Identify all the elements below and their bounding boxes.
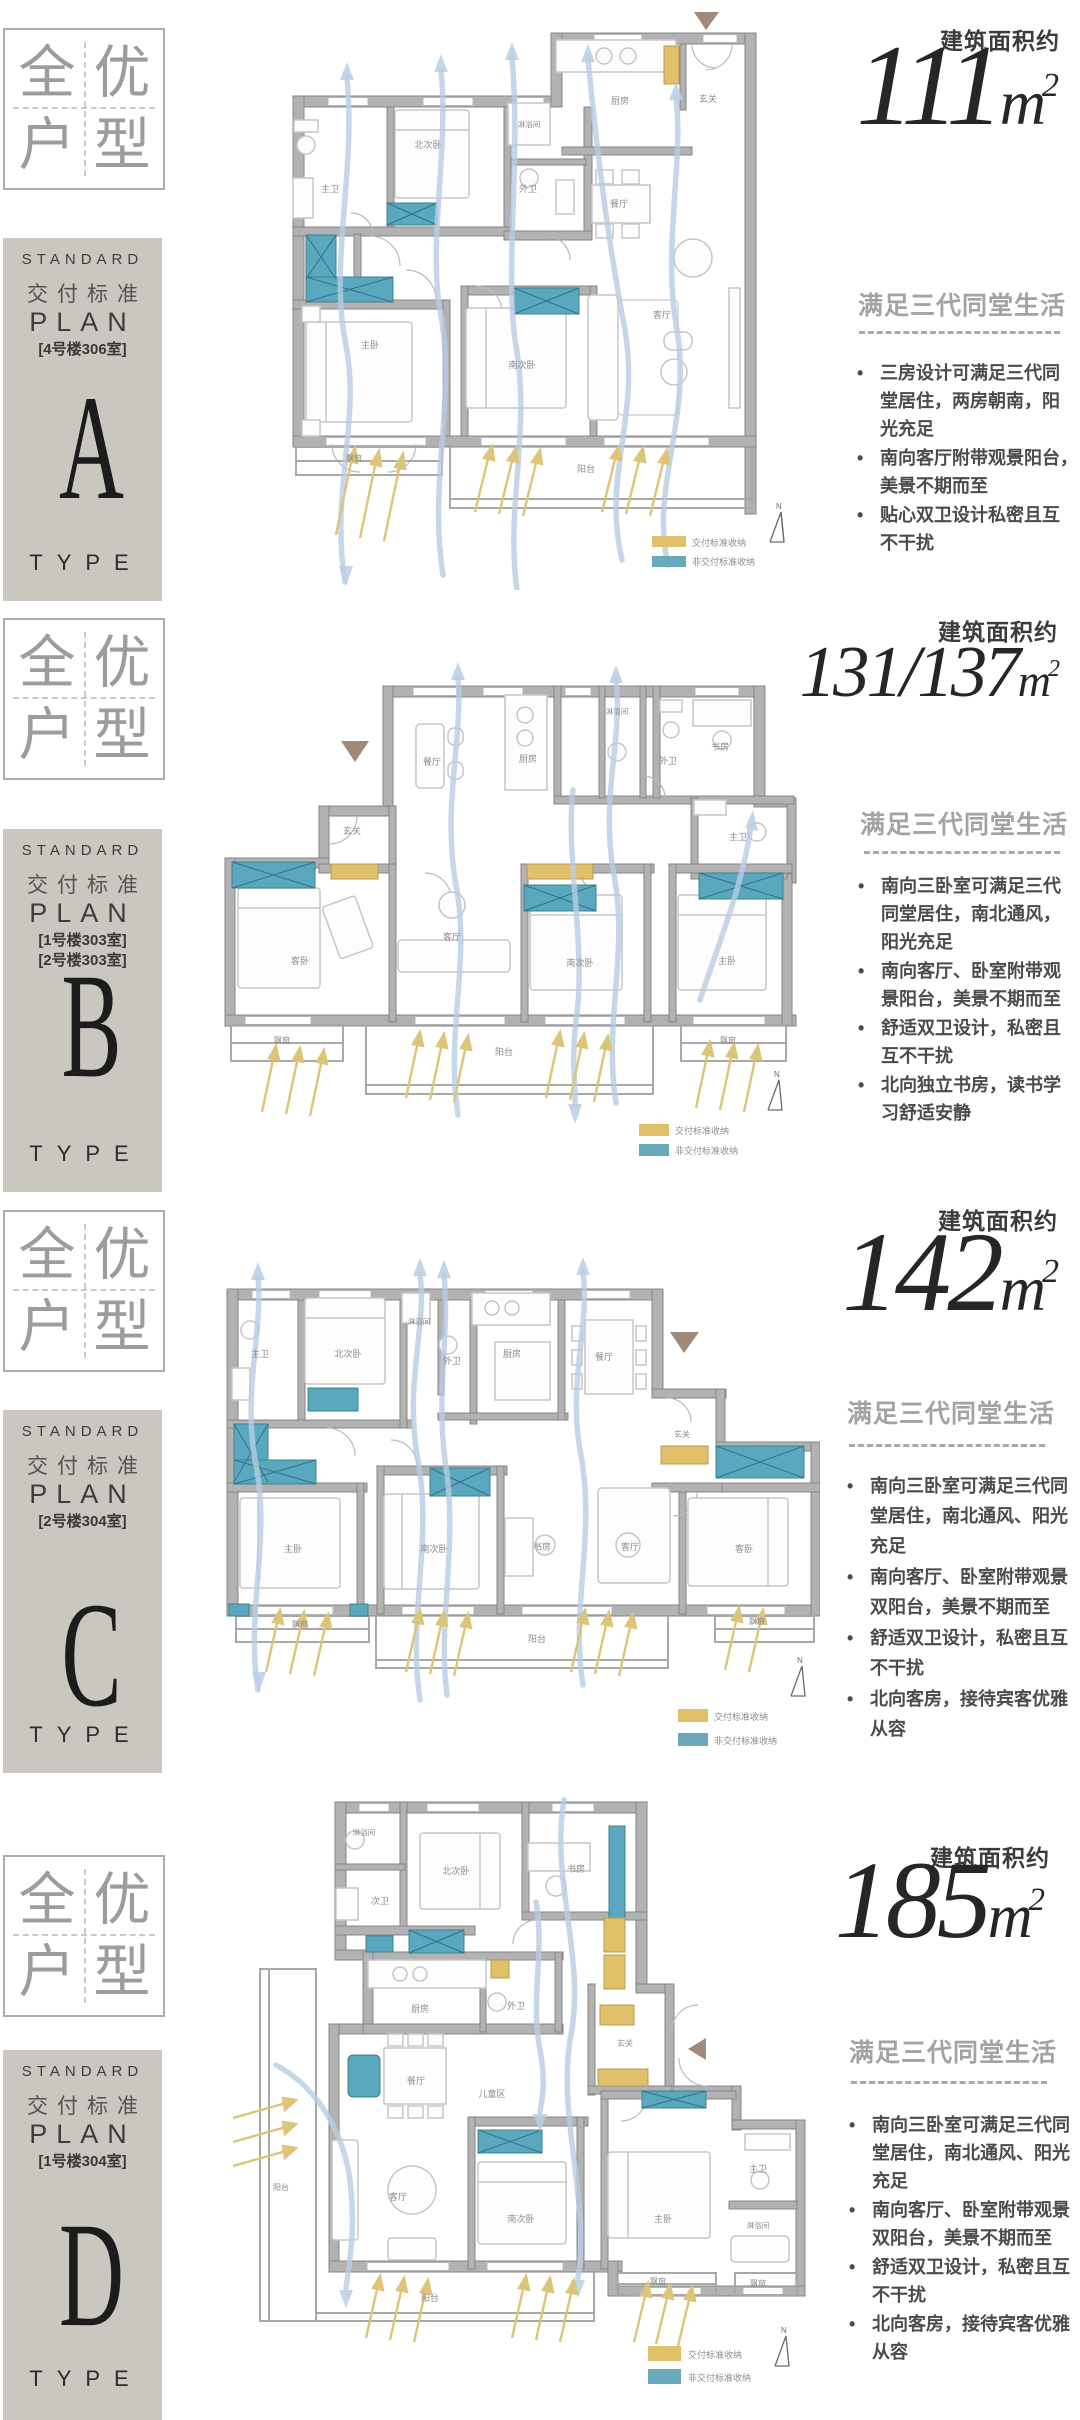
svg-text:厨房: 厨房 <box>519 753 537 764</box>
svg-text:主卫: 主卫 <box>749 2163 767 2174</box>
svg-text:客卧: 客卧 <box>291 955 309 966</box>
svg-text:南次卧: 南次卧 <box>420 1543 447 1554</box>
svg-text:主卧: 主卧 <box>284 1543 302 1554</box>
svg-text:阳台: 阳台 <box>421 2292 439 2303</box>
svg-text:玄关: 玄关 <box>699 93 717 104</box>
svg-text:北次卧: 北次卧 <box>414 139 441 150</box>
svg-text:北次卧: 北次卧 <box>442 1865 469 1876</box>
svg-text:玄关: 玄关 <box>617 2038 633 2048</box>
svg-text:阳台: 阳台 <box>495 1046 513 1057</box>
svg-text:餐厅: 餐厅 <box>407 2075 425 2086</box>
svg-text:阳台: 阳台 <box>528 1633 546 1644</box>
svg-text:交付标准收纳: 交付标准收纳 <box>692 537 746 548</box>
svg-text:玄关: 玄关 <box>343 825 361 836</box>
svg-text:南次卧: 南次卧 <box>507 2213 534 2224</box>
svg-text:书房: 书房 <box>533 1541 551 1552</box>
svg-text:外卫: 外卫 <box>507 2000 525 2011</box>
svg-text:主卧: 主卧 <box>361 339 379 350</box>
svg-text:淋浴间: 淋浴间 <box>606 706 629 716</box>
svg-text:飘窗: 飘窗 <box>720 1035 736 1045</box>
svg-text:飘窗: 飘窗 <box>650 2276 666 2286</box>
svg-text:北次卧: 北次卧 <box>334 1348 361 1359</box>
svg-text:客厅: 客厅 <box>621 1541 639 1552</box>
svg-text:书房: 书房 <box>711 741 729 752</box>
svg-text:交付标准收纳: 交付标准收纳 <box>714 1711 768 1722</box>
svg-text:客厅: 客厅 <box>443 931 461 942</box>
svg-text:淋浴间: 淋浴间 <box>518 119 541 129</box>
svg-text:N: N <box>776 502 782 511</box>
svg-text:阳台: 阳台 <box>577 463 595 474</box>
svg-text:外卫: 外卫 <box>659 755 677 766</box>
svg-text:次卫: 次卫 <box>371 1895 389 1906</box>
svg-text:阳台: 阳台 <box>273 2182 289 2192</box>
svg-text:儿童区: 儿童区 <box>478 2088 505 2099</box>
svg-text:主卧: 主卧 <box>718 955 736 966</box>
svg-text:飘窗: 飘窗 <box>292 1619 308 1629</box>
svg-text:主卫: 主卫 <box>321 183 339 194</box>
svg-text:厨房: 厨房 <box>611 95 629 106</box>
svg-text:飘窗: 飘窗 <box>274 1035 290 1045</box>
svg-text:飘窗: 飘窗 <box>346 453 362 463</box>
svg-text:非交付标准收纳: 非交付标准收纳 <box>692 556 755 567</box>
svg-text:外卫: 外卫 <box>519 183 537 194</box>
svg-text:非交付标准收纳: 非交付标准收纳 <box>688 2372 751 2383</box>
svg-text:非交付标准收纳: 非交付标准收纳 <box>714 1735 777 1746</box>
svg-text:飘窗: 飘窗 <box>750 2278 766 2288</box>
svg-text:主卫: 主卫 <box>251 1348 269 1359</box>
svg-text:淋浴间: 淋浴间 <box>353 1827 376 1837</box>
svg-text:淋浴间: 淋浴间 <box>408 1316 431 1326</box>
svg-text:N: N <box>797 1656 803 1665</box>
svg-text:餐厅: 餐厅 <box>595 1351 613 1362</box>
svg-text:厨房: 厨房 <box>503 1348 521 1359</box>
svg-text:南次卧: 南次卧 <box>566 957 593 968</box>
svg-text:交付标准收纳: 交付标准收纳 <box>675 1125 729 1136</box>
svg-text:非交付标准收纳: 非交付标准收纳 <box>675 1145 738 1156</box>
svg-text:客卧: 客卧 <box>735 1543 753 1554</box>
svg-text:主卫: 主卫 <box>729 831 747 842</box>
svg-text:外卫: 外卫 <box>443 1355 461 1366</box>
svg-text:N: N <box>781 2326 787 2335</box>
svg-text:交付标准收纳: 交付标准收纳 <box>688 2349 742 2360</box>
svg-text:餐厅: 餐厅 <box>423 756 441 767</box>
svg-text:玄关: 玄关 <box>674 1429 690 1439</box>
svg-text:南次卧: 南次卧 <box>508 359 535 370</box>
svg-text:厨房: 厨房 <box>411 2003 429 2014</box>
svg-text:客厅: 客厅 <box>653 309 671 320</box>
svg-text:客厅: 客厅 <box>389 2191 407 2202</box>
svg-text:飘窗: 飘窗 <box>749 1616 765 1626</box>
svg-text:N: N <box>774 1070 780 1079</box>
svg-text:书房: 书房 <box>567 1863 585 1874</box>
svg-text:餐厅: 餐厅 <box>610 198 628 209</box>
svg-text:主卧: 主卧 <box>654 2213 672 2224</box>
svg-text:淋浴间: 淋浴间 <box>747 2220 770 2230</box>
